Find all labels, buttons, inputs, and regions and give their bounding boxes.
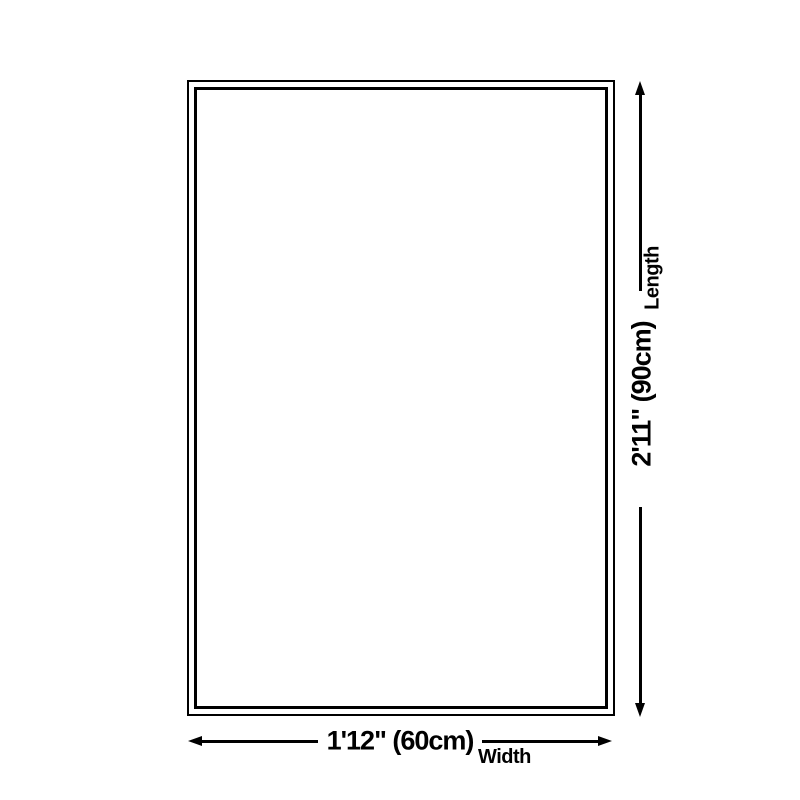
width-arrow-line-right xyxy=(482,740,599,743)
length-arrow-line-lower xyxy=(639,507,642,705)
width-label: Width xyxy=(478,746,531,769)
length-label: Length xyxy=(642,246,665,310)
arrow-down-icon xyxy=(635,703,645,717)
length-value: 2'11" (90cm) xyxy=(627,321,658,466)
width-value: 1'12" (60cm) xyxy=(327,725,474,756)
arrow-right-icon xyxy=(598,736,612,746)
product-outline-inner xyxy=(194,87,608,709)
dimension-diagram: Length 2'11" (90cm) 1'12" (60cm) Width xyxy=(0,0,800,800)
width-arrow-line-left xyxy=(199,740,318,743)
product-outline-outer xyxy=(187,80,615,716)
